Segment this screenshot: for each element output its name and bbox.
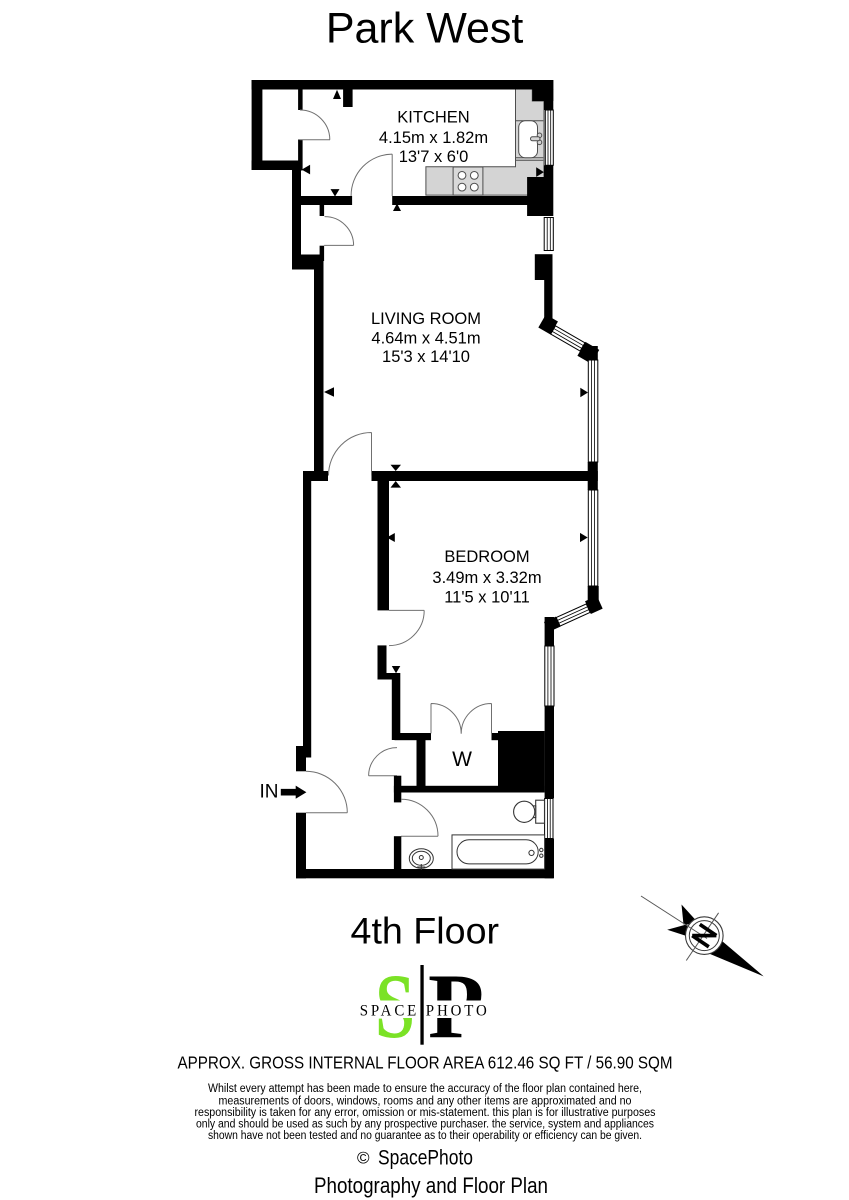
svg-text:W: W	[452, 748, 472, 771]
svg-text:APPROX. GROSS INTERNAL FLOOR A: APPROX. GROSS INTERNAL FLOOR AREA 612.46…	[178, 1053, 673, 1073]
svg-text:IN: IN	[260, 782, 279, 803]
svg-text:4th Floor: 4th Floor	[351, 911, 500, 952]
svg-text:SpacePhoto: SpacePhoto	[378, 1147, 473, 1170]
svg-text:responsibility is taken for an: responsibility is taken for any error, o…	[195, 1107, 656, 1119]
svg-text:13'7 x 6'0: 13'7 x 6'0	[399, 148, 469, 166]
svg-text:4.15m x 1.82m: 4.15m x 1.82m	[379, 129, 488, 147]
svg-text:KITCHEN: KITCHEN	[397, 109, 469, 127]
svg-text:4.64m x 4.51m: 4.64m x 4.51m	[371, 330, 480, 348]
svg-text:©: ©	[357, 1149, 370, 1168]
svg-text:3.49m x 3.32m: 3.49m x 3.32m	[432, 569, 541, 587]
svg-text:only and should be used as suc: only and should be used as such by any p…	[196, 1119, 654, 1131]
svg-text:shown have not been tested and: shown have not been tested and no guaran…	[208, 1130, 642, 1142]
svg-text:Photography and Floor Plan: Photography and Floor Plan	[314, 1173, 548, 1198]
svg-text:Park West: Park West	[326, 5, 524, 53]
svg-text:BEDROOM: BEDROOM	[444, 548, 529, 566]
svg-text:SPACE PHOTO: SPACE PHOTO	[360, 1002, 490, 1019]
svg-text:Whilst every attempt has been: Whilst every attempt has been made to en…	[208, 1083, 642, 1095]
svg-text:measurements of doors, windows: measurements of doors, windows, rooms an…	[219, 1095, 632, 1107]
svg-text:LIVING ROOM: LIVING ROOM	[371, 310, 481, 328]
svg-text:11'5 x 10'11: 11'5 x 10'11	[444, 589, 530, 607]
svg-text:15'3 x 14'10: 15'3 x 14'10	[382, 348, 470, 366]
